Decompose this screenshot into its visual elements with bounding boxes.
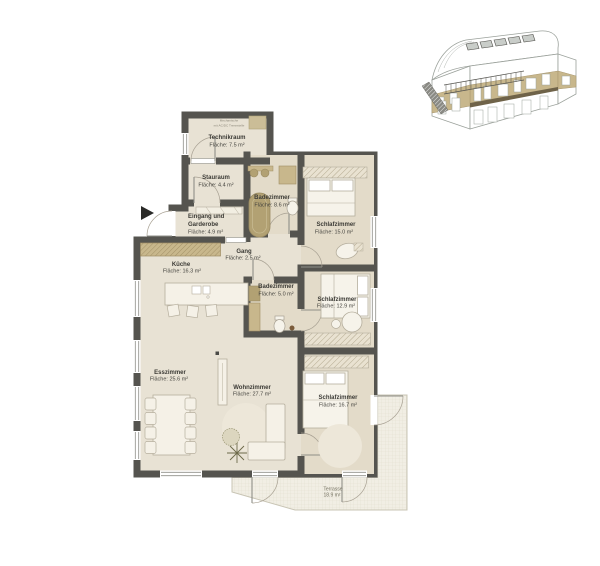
wardrobe-3: [305, 356, 369, 368]
room-label-technikraum-name: Technikraum: [209, 135, 246, 141]
room-label-schlafzimmer3-name: Schlafzimmer: [318, 395, 357, 401]
room-label-gang-area: Fläche: 2.5 m²: [225, 256, 260, 262]
floor-plan-canvas: [0, 0, 600, 566]
terrace-label-area: 18.9 m²: [324, 494, 341, 499]
bar-stools: [167, 304, 217, 318]
technik-note-line2: mit AC/DC Trennstelle: [214, 124, 245, 127]
column-dot: [216, 352, 220, 356]
bedroom3-rug: [318, 424, 362, 468]
wardrobe-2: [305, 333, 371, 345]
room-label-gang-name: Gang: [236, 249, 251, 255]
dining-furniture: [145, 395, 196, 455]
room-label-wohnzimmer-area: Fläche: 27.7 m²: [233, 392, 271, 398]
room-label-eingang-name2: Garderobe: [188, 222, 218, 228]
entrance-arrow-icon: [141, 206, 154, 220]
room-label-stauraum-area: Fläche: 4.4 m²: [198, 183, 233, 189]
room-label-stauraum-name: Stauraum: [202, 175, 230, 181]
room-label-schlafzimmer1-area: Fläche: 15.0 m²: [315, 230, 353, 236]
bath2-shower: [249, 303, 260, 331]
kitchen-counter: [141, 243, 221, 256]
room-label-badezimmer2-name: Badezimmer: [258, 284, 294, 290]
pouf-small: [332, 320, 341, 329]
room-label-technikraum-area: Fläche: 7.5 m²: [209, 143, 244, 149]
pouf-large: [342, 312, 362, 332]
wardrobe-1: [303, 167, 367, 178]
room-label-badezimmer2-area: Fläche: 5.0 m²: [258, 292, 293, 298]
building-axonometric-inset: [422, 31, 576, 129]
garderobe-closet: [196, 207, 242, 214]
bath2-plant: [290, 326, 295, 331]
room-label-eingang-name1: Eingang und: [188, 214, 224, 220]
room-label-badezimmer1-name: Badezimmer: [254, 195, 290, 201]
room-label-kueche-area: Fläche: 16.3 m²: [163, 269, 201, 275]
floor-plan-page: { "plan": { "colors": { "wall": "#55544f…: [0, 0, 600, 566]
room-label-eingang-area: Fläche: 4.9 m²: [188, 230, 223, 236]
room-label-schlafzimmer2-area: Fläche: 12.9 m²: [317, 304, 355, 310]
dining-table: [153, 395, 190, 455]
room-label-schlafzimmer1-name: Schlafzimmer: [316, 222, 355, 228]
room-label-badezimmer1-area: Fläche: 8.6 m²: [254, 203, 289, 209]
technik-unit: [249, 116, 266, 129]
technik-note-line1: Mechanische: [220, 119, 238, 122]
room-label-wohnzimmer-name: Wohnzimmer: [233, 385, 271, 391]
room-label-esszimmer-name: Esszimmer: [154, 370, 186, 376]
toilet-2: [274, 316, 285, 333]
bed-1: [307, 178, 355, 216]
room-label-schlafzimmer2-name: Schlafzimmer: [317, 297, 356, 303]
room-label-schlafzimmer3-area: Fläche: 16.7 m²: [319, 403, 357, 409]
bed-2: [321, 274, 370, 318]
room-label-esszimmer-area: Fläche: 25.6 m²: [150, 377, 188, 383]
bath-cabinet: [279, 166, 296, 184]
room-label-kueche-name: Küche: [172, 262, 190, 268]
